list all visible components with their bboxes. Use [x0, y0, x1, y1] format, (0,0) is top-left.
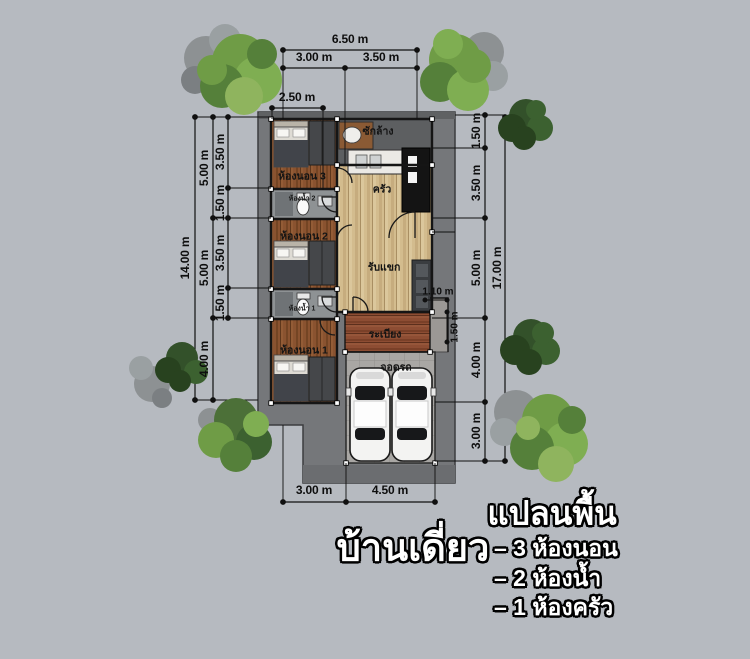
plan-title: บ้านเดี่ยว: [337, 517, 490, 578]
room-label-bedroom3: ห้องนอน 3: [278, 168, 326, 185]
room-label-terrace: ระเบียง: [369, 326, 402, 343]
dim-bottom-2: 4.50 m: [372, 483, 408, 497]
bed-bedroom1: [274, 355, 335, 401]
dim-left-inner-2: 1.50 m: [213, 185, 227, 221]
bed-bedroom2: [274, 241, 335, 287]
room-label-bedroom1: ห้องนอน 1: [280, 342, 328, 359]
tree-top-left: [181, 24, 282, 115]
dim-left-inner-1: 3.50 m: [213, 134, 227, 170]
room-label-laundry: ซักล้าง: [363, 123, 394, 140]
tree-bottom-right: [490, 390, 588, 482]
room-label-carport: จอดรถ: [380, 359, 411, 376]
tree-right-middle: [500, 319, 560, 375]
dim-right-inner-1: 1.50 m: [469, 113, 483, 149]
car-left: [346, 368, 394, 461]
dim-left-mid-3: 4.00 m: [197, 341, 211, 377]
dim-left-inner-3: 3.50 m: [213, 235, 227, 271]
room-label-living: รับแขก: [368, 259, 401, 276]
dim-right-total: 17.00 m: [490, 247, 504, 290]
dim-right-inner-4: 4.00 m: [469, 342, 483, 378]
room-label-kitchen: ครัว: [373, 181, 392, 198]
dim-left-total: 14.00 m: [178, 237, 192, 280]
dim-top-total: 6.50 m: [332, 32, 368, 46]
dim-top-left: 3.00 m: [296, 50, 332, 64]
dim-left-mid-1: 5.00 m: [197, 150, 211, 186]
dim-terrace-depth: 1.50 m: [450, 311, 461, 342]
dim-top-right: 3.50 m: [363, 50, 399, 64]
tree-top-right: [420, 29, 508, 111]
room-label-bath2: ห้องน้ำ 2: [289, 194, 316, 205]
dim-top-inset: 2.50 m: [279, 90, 315, 104]
car-right: [388, 368, 436, 461]
tree-right-upper: [498, 99, 553, 150]
bed-bedroom3: [274, 121, 335, 167]
legend-item-kitchen: – 1 ห้องครัว: [494, 590, 613, 626]
floor-plan-page: 6.50 m 3.00 m 3.50 m 2.50 m 14.00 m 5.00…: [0, 0, 750, 659]
dim-left-mid-2: 5.00 m: [197, 250, 211, 286]
dim-bottom-1: 3.00 m: [296, 483, 332, 497]
room-label-bedroom2: ห้องนอน 2: [280, 228, 328, 245]
dim-right-inner-5: 3.00 m: [469, 413, 483, 449]
dim-left-inner-4: 1.50 m: [213, 285, 227, 321]
room-label-bath1: ห้องน้ำ 1: [289, 304, 316, 315]
dim-right-inner-2: 3.50 m: [469, 165, 483, 201]
dim-terrace-width: 1.10 m: [422, 287, 453, 298]
dim-right-inner-3: 5.00 m: [469, 250, 483, 286]
